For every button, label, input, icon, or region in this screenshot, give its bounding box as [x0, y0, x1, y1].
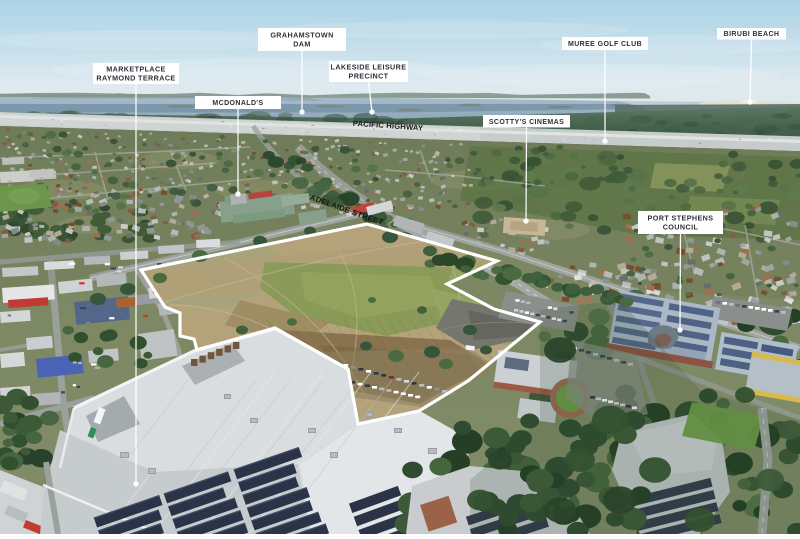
svg-text:LAKESIDE LEISURE: LAKESIDE LEISURE — [331, 63, 407, 72]
svg-text:BIRUBI BEACH: BIRUBI BEACH — [724, 31, 780, 38]
svg-text:COUNCIL: COUNCIL — [663, 222, 699, 231]
svg-text:SCOTTY'S CINEMAS: SCOTTY'S CINEMAS — [489, 119, 564, 126]
svg-text:RAYMOND TERRACE: RAYMOND TERRACE — [96, 73, 175, 82]
svg-text:PORT STEPHENS: PORT STEPHENS — [648, 214, 714, 223]
svg-text:MCDONALD'S: MCDONALD'S — [212, 100, 263, 107]
svg-text:MUREE GOLF CLUB: MUREE GOLF CLUB — [568, 41, 642, 48]
svg-text:MARKETPLACE: MARKETPLACE — [106, 65, 166, 74]
svg-text:DAM: DAM — [293, 39, 311, 48]
svg-text:GRAHAMSTOWN: GRAHAMSTOWN — [270, 31, 333, 40]
svg-text:PRECINCT: PRECINCT — [349, 71, 389, 80]
